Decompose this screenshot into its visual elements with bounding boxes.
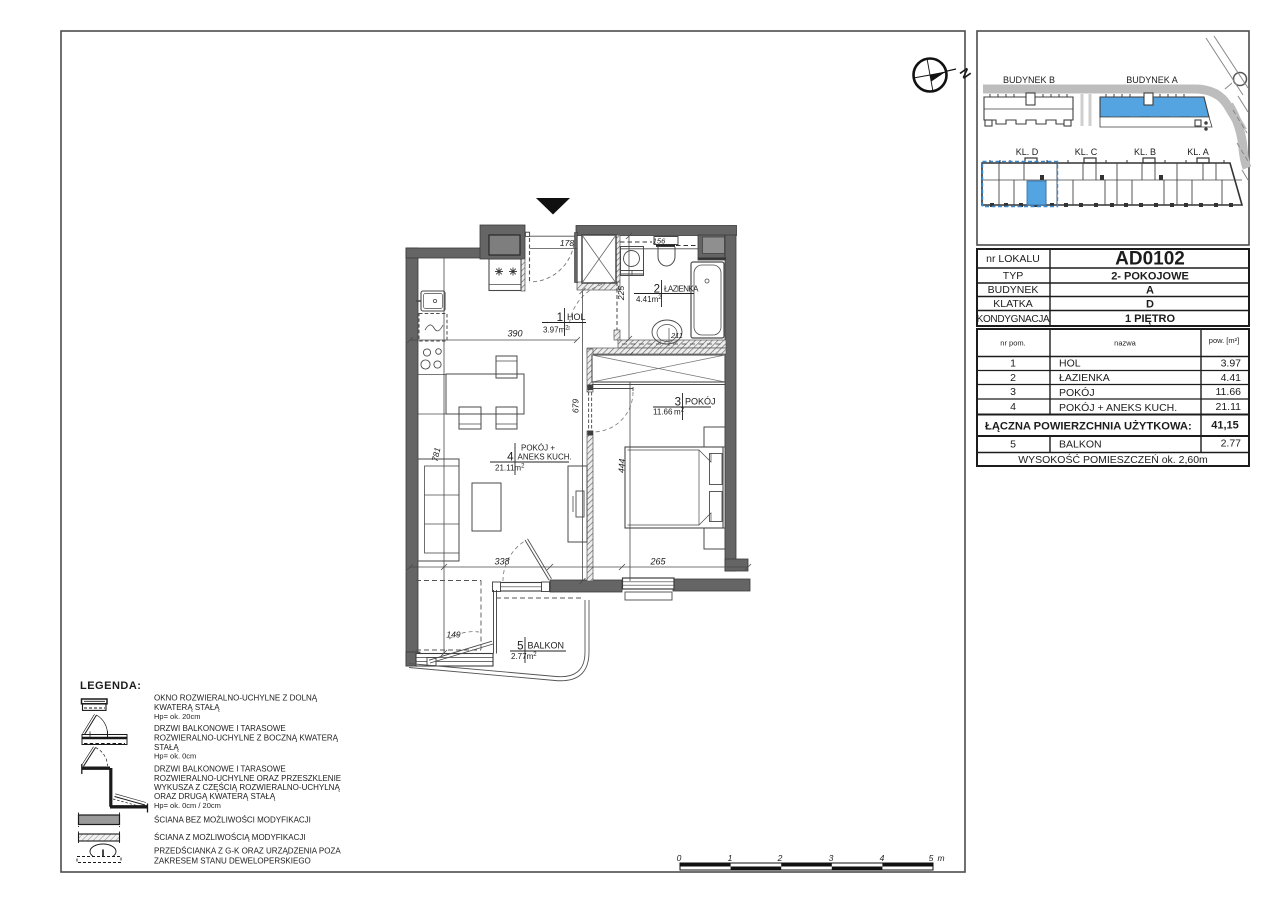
svg-text:ŁAZIENKA: ŁAZIENKA xyxy=(664,285,699,294)
svg-text:KL. D: KL. D xyxy=(1016,147,1039,157)
svg-text:HOL: HOL xyxy=(1059,358,1081,370)
svg-text:ŚCIANA BEZ MOŻLIWOŚCI MODYFIKA: ŚCIANA BEZ MOŻLIWOŚCI MODYFIKACJI xyxy=(154,816,311,825)
svg-text:781: 781 xyxy=(430,446,443,462)
svg-text:PRZEDŚCIANKA Z G-K ORAZ URZĄDZ: PRZEDŚCIANKA Z G-K ORAZ URZĄDZENIA POZA xyxy=(154,847,341,856)
svg-text:265: 265 xyxy=(649,557,666,567)
svg-text:156: 156 xyxy=(653,237,666,246)
svg-text:nr pom.: nr pom. xyxy=(1000,339,1025,348)
svg-text:225: 225 xyxy=(616,286,626,301)
svg-text:DRZWI BALKONOWE I TARASOWE: DRZWI BALKONOWE I TARASOWE xyxy=(154,765,286,774)
svg-text:1 PIĘTRO: 1 PIĘTRO xyxy=(1125,313,1176,325)
svg-text:ANEKS KUCH.: ANEKS KUCH. xyxy=(518,453,572,462)
svg-text:KONDYGNACJA: KONDYGNACJA xyxy=(977,314,1050,325)
svg-text:POKÓJ: POKÓJ xyxy=(1059,386,1095,399)
svg-text:2.77: 2.77 xyxy=(1221,438,1242,450)
svg-text:BUDYNEK A: BUDYNEK A xyxy=(1126,75,1178,85)
svg-text:Hp= ok. 0cm / 20cm: Hp= ok. 0cm / 20cm xyxy=(154,801,221,810)
svg-text:4: 4 xyxy=(880,853,885,863)
svg-text:1: 1 xyxy=(728,853,733,863)
svg-text:ŚCIANA Z MOŻLIWOŚCIĄ MODYFIKAC: ŚCIANA Z MOŻLIWOŚCIĄ MODYFIKACJI xyxy=(154,833,306,842)
svg-text:KL. A: KL. A xyxy=(1187,147,1209,157)
svg-text:2: 2 xyxy=(777,853,783,863)
svg-text:DRZWI BALKONOWE I TARASOWE: DRZWI BALKONOWE I TARASOWE xyxy=(154,724,286,733)
svg-text:nazwa: nazwa xyxy=(1114,339,1137,348)
svg-text:4: 4 xyxy=(1010,401,1016,413)
svg-text:AD0102: AD0102 xyxy=(1115,249,1185,270)
svg-text:338: 338 xyxy=(494,557,509,567)
svg-text:Hp= ok. 0cm: Hp= ok. 0cm xyxy=(154,752,196,761)
svg-text:ŁĄCZNA POWIERZCHNIA UŻYTKOWA:: ŁĄCZNA POWIERZCHNIA UŻYTKOWA: xyxy=(985,420,1192,433)
svg-text:2: 2 xyxy=(1010,372,1016,384)
svg-text:178: 178 xyxy=(560,238,574,248)
svg-text:211: 211 xyxy=(670,331,683,340)
svg-text:m: m xyxy=(937,853,944,863)
svg-text:390: 390 xyxy=(507,329,522,339)
svg-text:4.41: 4.41 xyxy=(1221,372,1242,384)
svg-text:WYSOKOŚĆ POMIESZCZEŃ ok. 2,60m: WYSOKOŚĆ POMIESZCZEŃ ok. 2,60m xyxy=(1018,453,1208,466)
svg-text:3: 3 xyxy=(1010,386,1016,398)
svg-text:149: 149 xyxy=(446,630,460,640)
svg-text:679: 679 xyxy=(571,399,581,413)
svg-text:21.11: 21.11 xyxy=(1216,401,1242,413)
svg-text:ORAZ DRUGĄ KWATERĄ STAŁĄ: ORAZ DRUGĄ KWATERĄ STAŁĄ xyxy=(154,792,276,801)
svg-text:ZAKRESEM STANU DEWELOPERSKIEGO: ZAKRESEM STANU DEWELOPERSKIEGO xyxy=(154,857,311,866)
svg-text:3.97m2: 3.97m2 xyxy=(543,326,569,335)
svg-text:5: 5 xyxy=(1010,439,1016,451)
svg-text:pow. [m²]: pow. [m²] xyxy=(1209,336,1239,345)
svg-text:3: 3 xyxy=(829,853,834,863)
svg-text:ROZWIERALNO-UCHYLNE Z BOCZNĄ K: ROZWIERALNO-UCHYLNE Z BOCZNĄ KWATERĄ xyxy=(154,734,339,743)
svg-text:21.11m2: 21.11m2 xyxy=(495,464,525,473)
svg-text:A: A xyxy=(1146,285,1154,297)
svg-text:444: 444 xyxy=(616,458,627,473)
svg-text:D: D xyxy=(1146,299,1154,311)
svg-text:BUDYNEK B: BUDYNEK B xyxy=(1003,75,1055,85)
svg-text:3.97: 3.97 xyxy=(1221,358,1242,370)
svg-text:ŁAZIENKA: ŁAZIENKA xyxy=(1059,372,1110,384)
svg-text:11.66: 11.66 xyxy=(1216,386,1242,398)
svg-text:41,15: 41,15 xyxy=(1211,420,1239,432)
svg-text:KL. B: KL. B xyxy=(1134,147,1156,157)
svg-text:N: N xyxy=(957,65,975,81)
svg-text:BALKON: BALKON xyxy=(528,641,565,651)
svg-text:2- POKOJOWE: 2- POKOJOWE xyxy=(1111,271,1189,283)
svg-text:BUDYNEK: BUDYNEK xyxy=(988,284,1039,296)
svg-text:11.66 m2: 11.66 m2 xyxy=(653,408,685,417)
svg-text:LEGENDA:: LEGENDA: xyxy=(80,680,141,692)
svg-text:BALKON: BALKON xyxy=(1059,439,1102,451)
svg-text:ROZWIERALNO-UCHYLNE ORAZ PRZES: ROZWIERALNO-UCHYLNE ORAZ PRZESZKLENIE xyxy=(154,774,341,783)
svg-text:POKÓJ: POKÓJ xyxy=(685,397,716,407)
svg-text:5: 5 xyxy=(929,853,934,863)
svg-text:0: 0 xyxy=(677,853,682,863)
svg-text:POKÓJ +: POKÓJ + xyxy=(521,444,555,453)
svg-text:OKNO ROZWIERALNO-UCHYLNE Z DOL: OKNO ROZWIERALNO-UCHYLNE Z DOLNĄ xyxy=(154,694,318,703)
svg-text:POKÓJ + ANEKS KUCH.: POKÓJ + ANEKS KUCH. xyxy=(1059,401,1177,414)
svg-text:WYKUSZA Z CZĘŚCIĄ ROZWIERALNO-: WYKUSZA Z CZĘŚCIĄ ROZWIERALNO-UCHYLNĄ xyxy=(154,783,340,792)
svg-text:KL. C: KL. C xyxy=(1075,147,1098,157)
svg-text:1: 1 xyxy=(1010,358,1016,370)
svg-text:4.41m2: 4.41m2 xyxy=(636,295,662,304)
svg-text:HOL: HOL xyxy=(567,312,586,322)
svg-text:nr LOKALU: nr LOKALU xyxy=(986,253,1040,265)
svg-text:TYP: TYP xyxy=(1003,270,1023,282)
svg-text:KWATERĄ STAŁĄ: KWATERĄ STAŁĄ xyxy=(154,703,220,712)
svg-text:KLATKA: KLATKA xyxy=(993,298,1033,310)
svg-text:2.77m2: 2.77m2 xyxy=(511,652,537,661)
svg-text:Hp= ok. 20cm: Hp= ok. 20cm xyxy=(154,712,200,721)
